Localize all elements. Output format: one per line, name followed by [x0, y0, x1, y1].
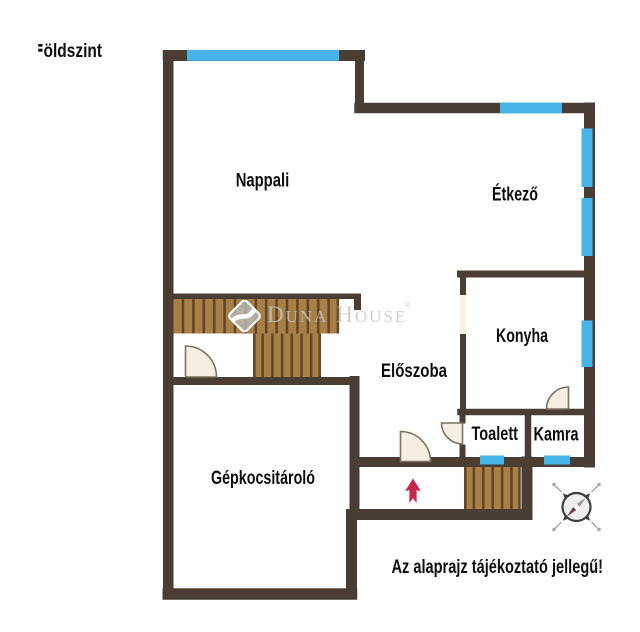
svg-text:Toalett: Toalett	[472, 424, 519, 445]
svg-text:Az alaprajz tájékoztató jelleg: Az alaprajz tájékoztató jellegű!	[392, 557, 604, 578]
svg-text:öldszint: öldszint	[44, 41, 103, 62]
svg-text:Előszoba: Előszoba	[381, 361, 447, 382]
svg-text:Nappali: Nappali	[236, 171, 290, 192]
svg-text:Konyha: Konyha	[496, 326, 548, 347]
svg-text:Kamra: Kamra	[534, 425, 579, 446]
svg-text:Gépkocsitároló: Gépkocsitároló	[211, 468, 315, 489]
svg-text:Étkező: Étkező	[492, 184, 538, 206]
svg-text:®: ®	[404, 300, 411, 310]
